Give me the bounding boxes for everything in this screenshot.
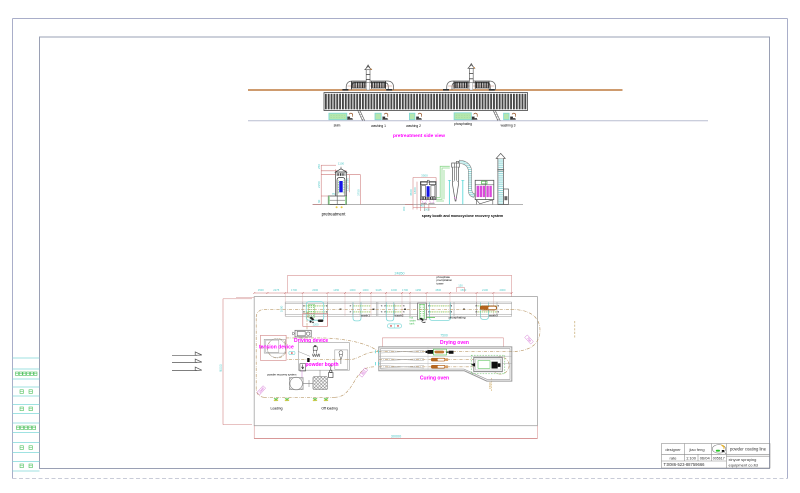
svg-text:1000: 1000 (424, 208, 430, 212)
svg-text:powder coating line: powder coating line (730, 447, 767, 452)
svg-text:1250: 1250 (415, 288, 421, 292)
svg-text:2000: 2000 (312, 288, 318, 292)
svg-text:005617: 005617 (713, 456, 725, 460)
svg-text:phosphating: phosphating (454, 122, 472, 126)
svg-text:60: 60 (317, 199, 321, 203)
svg-text:Curing oven: Curing oven (420, 376, 449, 382)
svg-text:1700: 1700 (402, 288, 408, 292)
svg-text:equipment co.ltd: equipment co.ltd (729, 462, 758, 467)
svg-text:2000: 2000 (500, 288, 506, 292)
svg-text:1700: 1700 (291, 288, 297, 292)
svg-text:400: 400 (420, 204, 425, 208)
svg-text:xinyue spraying: xinyue spraying (729, 457, 757, 462)
svg-text:06/04: 06/04 (700, 455, 711, 460)
svg-text:2100: 2100 (482, 288, 488, 292)
svg-text:tower: tower (437, 282, 444, 286)
svg-text:1:100: 1:100 (686, 455, 697, 460)
svg-text:wash2: wash2 (395, 314, 404, 318)
svg-text:2275: 2275 (273, 288, 279, 292)
svg-text:1500: 1500 (488, 382, 492, 389)
svg-text:phosphating: phosphating (449, 316, 466, 320)
svg-text:Driving device: Driving device (294, 338, 328, 344)
svg-text:washing 2: washing 2 (406, 124, 421, 128)
svg-text:3500: 3500 (421, 174, 428, 178)
svg-text:1200: 1200 (313, 322, 319, 326)
svg-text:1000: 1000 (391, 288, 397, 292)
svg-text:1500: 1500 (258, 288, 264, 292)
svg-text:3445: 3445 (376, 288, 382, 292)
svg-text:Off loading: Off loading (321, 407, 337, 411)
svg-text:Loading: Loading (270, 407, 282, 411)
svg-text:tension device: tension device (259, 344, 294, 350)
svg-text:designer: designer (665, 447, 681, 452)
svg-text:skim: skim (334, 124, 341, 128)
svg-text:1000: 1000 (363, 288, 369, 292)
svg-text:rate: rate (670, 455, 678, 460)
svg-text:24850: 24850 (395, 272, 405, 276)
svg-text:1500: 1500 (460, 288, 466, 292)
svg-text:1000: 1000 (279, 305, 283, 312)
svg-text:Drying oven: Drying oven (440, 340, 469, 346)
svg-text:7500: 7500 (440, 334, 448, 338)
svg-text:9000: 9000 (219, 364, 223, 372)
svg-text:tank: tank (410, 321, 416, 325)
svg-text:4500: 4500 (435, 288, 441, 292)
svg-text:30000: 30000 (391, 434, 402, 438)
svg-text:spray booth and monocyclone re: spray booth and monocyclone recovery sys… (422, 214, 504, 218)
svg-text:powder booth: powder booth (306, 362, 339, 368)
svg-text:450: 450 (402, 206, 406, 211)
svg-text:wash3: wash3 (489, 314, 498, 318)
svg-text:washing 1: washing 1 (371, 124, 386, 128)
svg-text:pretreatment side view: pretreatment side view (393, 133, 445, 139)
svg-text:2350: 2350 (317, 181, 321, 188)
svg-text:1450: 1450 (333, 288, 339, 292)
svg-text:jiao feng: jiao feng (688, 447, 704, 452)
svg-text:T:0086-523-88759666: T:0086-523-88759666 (664, 462, 706, 467)
svg-text:150: 150 (458, 284, 463, 288)
svg-text:pretreatment: pretreatment (322, 211, 347, 216)
svg-text:washing 3: washing 3 (501, 123, 516, 127)
svg-text:1800: 1800 (413, 187, 417, 194)
svg-text:1000: 1000 (350, 288, 356, 292)
svg-text:3750: 3750 (356, 189, 360, 196)
svg-text:1100: 1100 (338, 162, 345, 166)
svg-text:250: 250 (317, 164, 321, 169)
svg-text:wash1: wash1 (361, 314, 370, 318)
svg-text:powder recovery system: powder recovery system (267, 373, 297, 377)
